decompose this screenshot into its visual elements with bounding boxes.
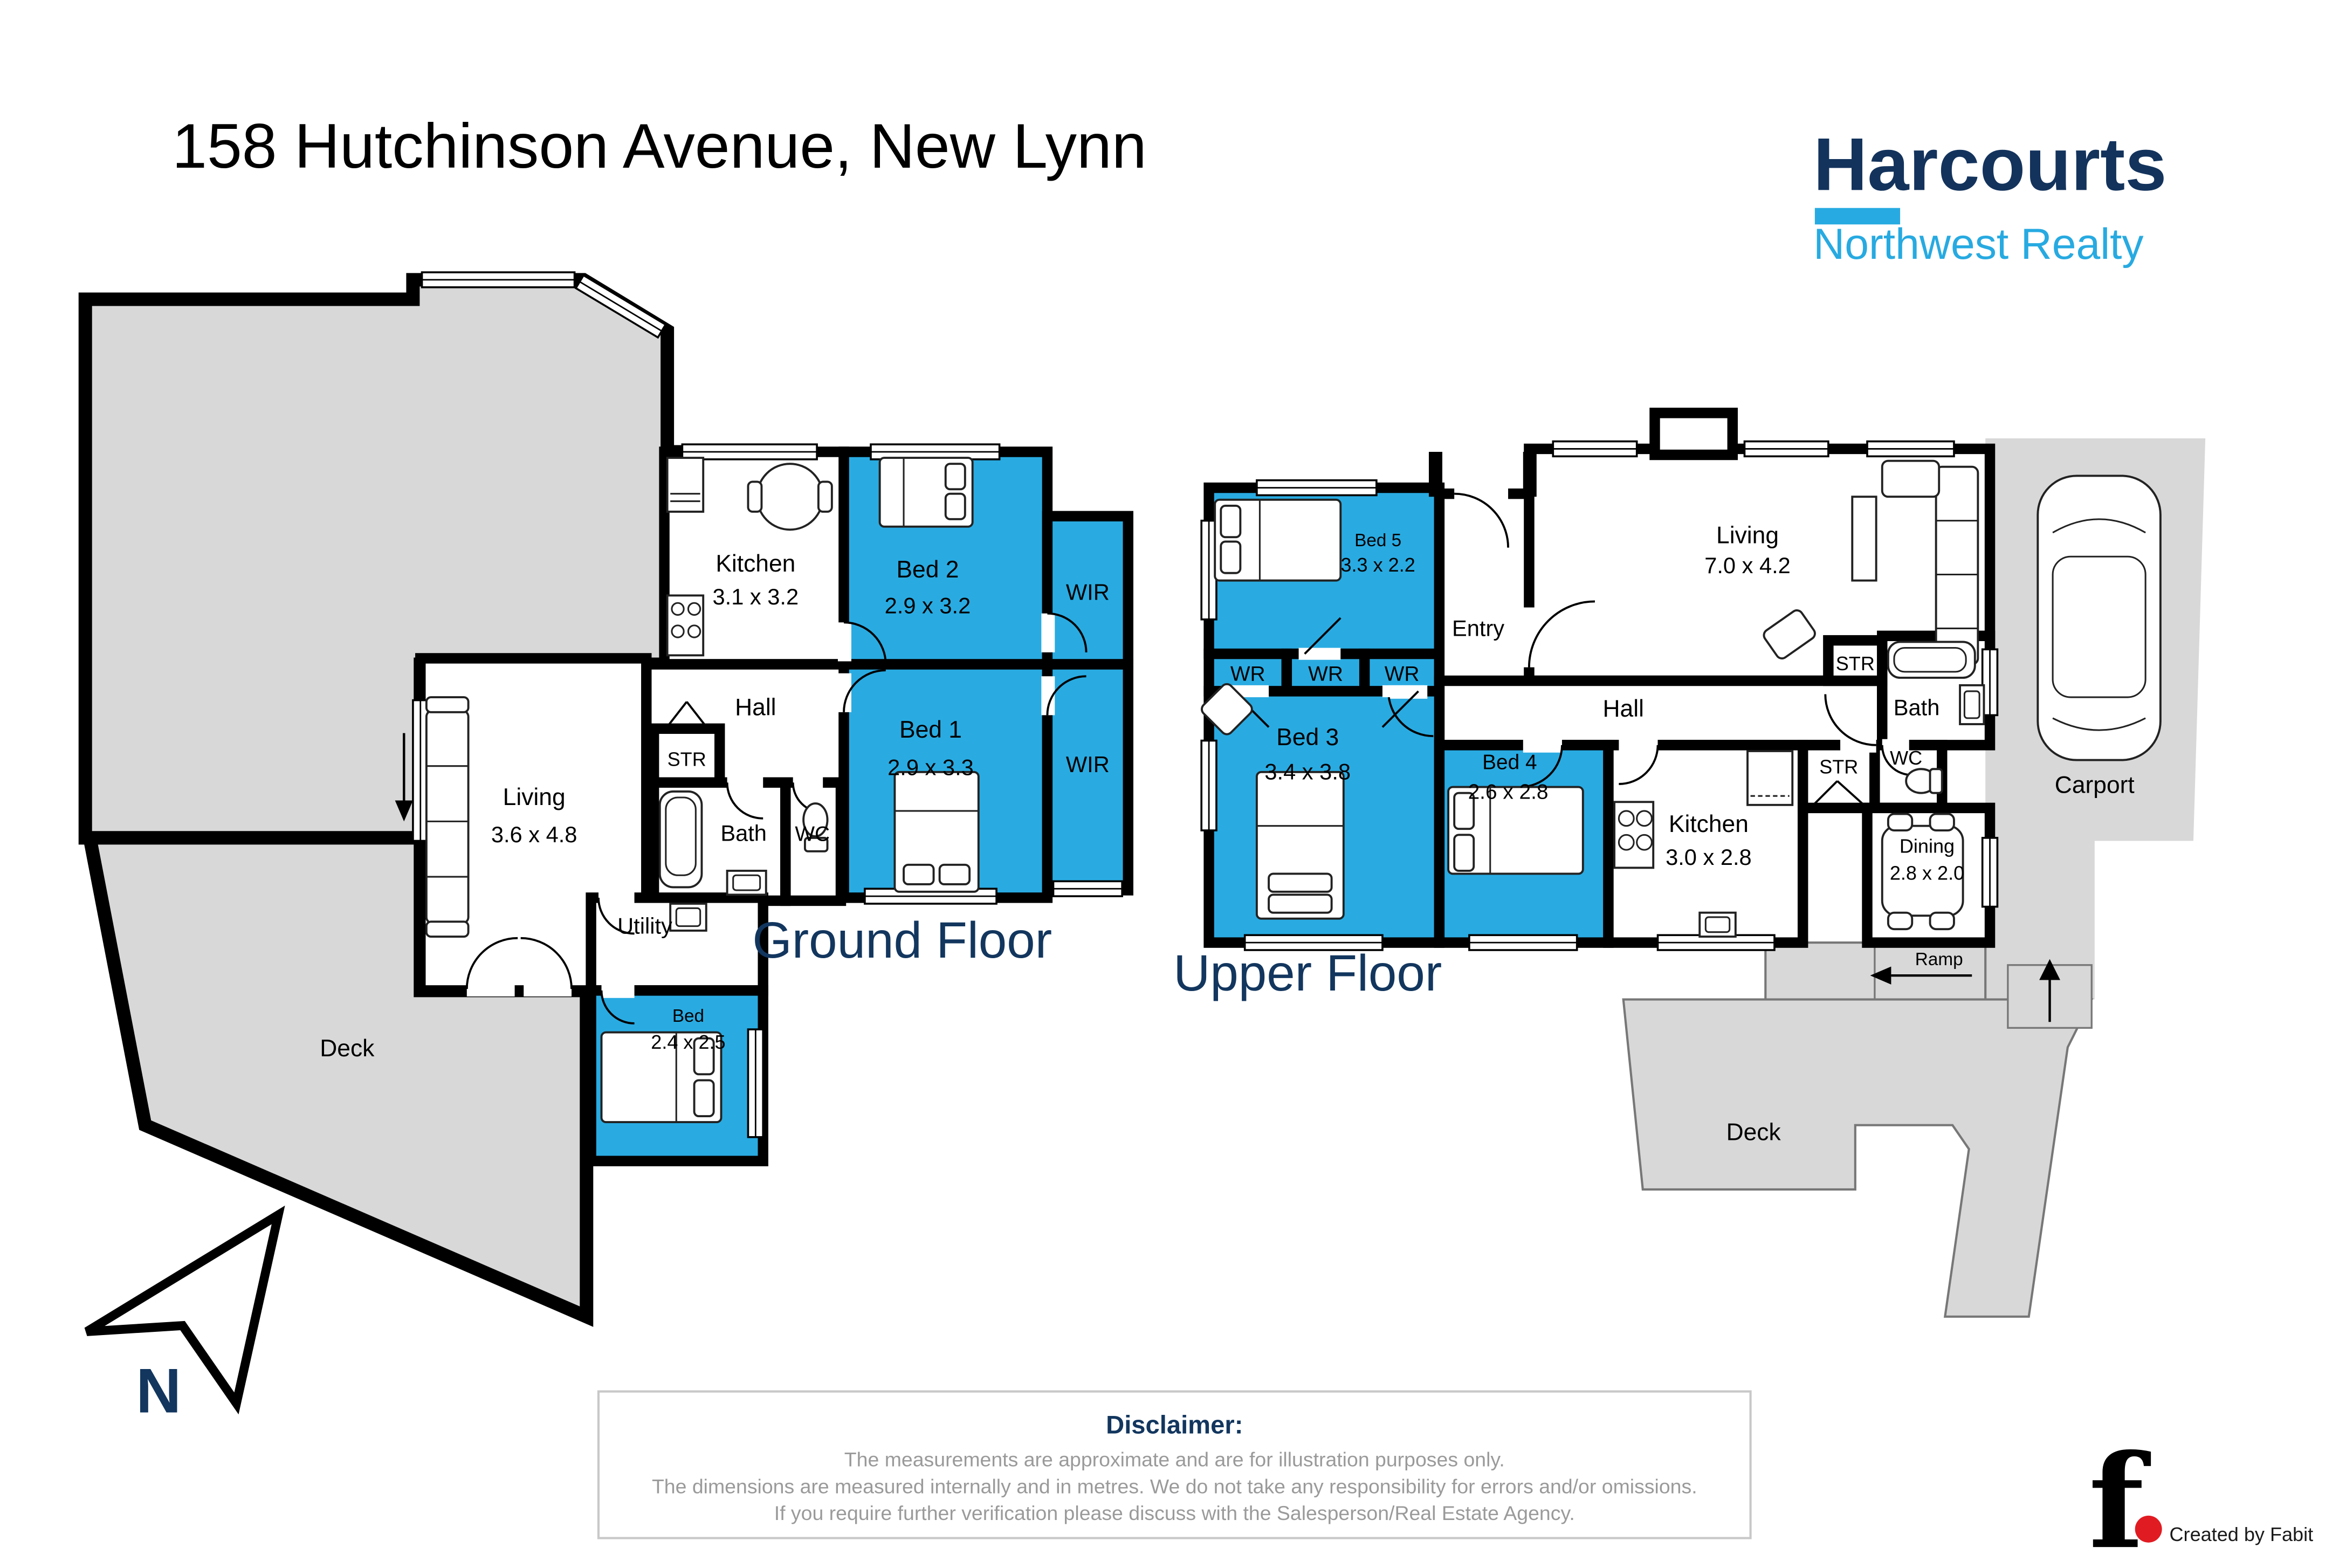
room-label-upper-living: Living xyxy=(1716,522,1779,548)
disclaimer-line-3: If you require further verification plea… xyxy=(774,1502,1575,1524)
bathtub-icon xyxy=(660,792,702,888)
upper-floor-plan: Bed 5 3.3 x 2.2 WR WR WR Entry Living 7.… xyxy=(1173,413,2205,1317)
porch-wall xyxy=(1523,452,1537,497)
sink-icon xyxy=(727,871,766,895)
sink-icon xyxy=(1700,913,1736,937)
room-label-ground-wc: WC xyxy=(795,822,830,845)
fridge-icon xyxy=(1748,751,1792,805)
room-label-upper-str-bottom: STR xyxy=(1819,756,1858,778)
sofa-icon xyxy=(426,697,469,937)
room-label-upper-deck: Deck xyxy=(1726,1119,1781,1145)
stove-icon xyxy=(668,595,704,655)
car-icon xyxy=(2038,476,2161,760)
disclaimer-line-2: The dimensions are measured internally a… xyxy=(652,1475,1697,1497)
room-label-ground-str: STR xyxy=(668,748,706,771)
room-label-ground-utility: Utility xyxy=(617,913,672,938)
room-label-upper-hall: Hall xyxy=(1602,696,1643,722)
room-dims-upper-bed4: 2.6 x 2.8 xyxy=(1468,781,1549,804)
coffee-table-icon xyxy=(1852,497,1876,580)
room-dims-ground-bed-small: 2.4 x 2.5 xyxy=(651,1031,725,1053)
room-label-upper-entry: Entry xyxy=(1452,615,1504,641)
sink-icon xyxy=(1960,685,1984,724)
room-label-upper-wr3: WR xyxy=(1385,663,1420,686)
room-label-ground-bed2: Bed 2 xyxy=(896,556,959,583)
ground-floor-title: Ground Floor xyxy=(752,912,1052,968)
room-dims-ground-kitchen: 3.1 x 3.2 xyxy=(713,584,799,609)
room-upper-hall xyxy=(1439,681,1882,745)
bed-icon xyxy=(880,458,973,527)
porch-wall xyxy=(1429,452,1442,497)
north-label: N xyxy=(136,1355,181,1426)
harcourts-logo: Harcourts Northwest Realty xyxy=(1813,122,2166,269)
upper-floor-title: Upper Floor xyxy=(1173,945,1442,1001)
room-label-ground-wir-bottom: WIR xyxy=(1066,752,1110,777)
entry-arrow-icon xyxy=(2008,959,2092,1028)
room-label-upper-wr2: WR xyxy=(1308,663,1343,686)
stove-icon xyxy=(1614,802,1653,868)
ground-floor-plan: Kitchen 3.1 x 3.2 Bed 2 2.9 x 3.2 WIR Ha… xyxy=(85,272,1128,1317)
fabit-credit: f Created by Fabit xyxy=(2089,1427,2313,1568)
room-dims-ground-bed1: 2.9 x 3.3 xyxy=(888,754,974,780)
room-label-upper-bed4: Bed 4 xyxy=(1482,751,1537,774)
bathtub-icon xyxy=(1888,642,1975,678)
fridge-icon xyxy=(668,458,704,512)
room-label-upper-str-top: STR xyxy=(1836,652,1875,675)
room-dims-ground-bed2: 2.9 x 3.2 xyxy=(885,593,971,618)
logo-sub-text: Northwest Realty xyxy=(1813,220,2144,269)
disclaimer-title: Disclaimer: xyxy=(1106,1410,1243,1439)
bed-icon xyxy=(1257,772,1344,919)
header: 158 Hutchinson Avenue, New Lynn Harcourt… xyxy=(172,111,2166,269)
room-label-ground-hall: Hall xyxy=(735,694,776,720)
room-label-upper-wr1: WR xyxy=(1230,663,1265,686)
room-label-ground-deck: Deck xyxy=(320,1035,375,1062)
room-upper-entry xyxy=(1439,494,1529,691)
upper-living-bump xyxy=(1655,413,1732,455)
room-dims-upper-kitchen: 3.0 x 2.8 xyxy=(1666,844,1752,870)
north-arrow-icon xyxy=(87,1215,278,1404)
toilet-icon xyxy=(1906,769,1942,793)
room-label-ground-bed1: Bed 1 xyxy=(899,717,962,743)
room-label-ground-living: Living xyxy=(503,784,566,810)
room-label-ground-bed-small: Bed xyxy=(672,1006,704,1026)
room-dims-upper-dining: 2.8 x 2.0 xyxy=(1890,862,1964,884)
north-compass: N xyxy=(87,1215,278,1426)
fabit-logo-icon: f xyxy=(2089,1427,2151,1568)
disclaimer-box: Disclaimer: The measurements are approxi… xyxy=(598,1392,1751,1538)
credit-text: Created by Fabit xyxy=(2170,1523,2314,1545)
floorplan-canvas: 158 Hutchinson Avenue, New Lynn Harcourt… xyxy=(0,0,2346,1568)
room-dims-ground-living: 3.6 x 4.8 xyxy=(491,822,577,847)
room-label-upper-ramp: Ramp xyxy=(1915,950,1963,969)
room-label-upper-kitchen: Kitchen xyxy=(1669,811,1749,837)
bed-icon xyxy=(895,772,978,892)
fabit-red-dot-icon xyxy=(2135,1516,2162,1543)
room-label-upper-bed5: Bed 5 xyxy=(1354,531,1401,551)
logo-brand-text: Harcourts xyxy=(1813,122,2166,206)
room-label-upper-bath: Bath xyxy=(1894,694,1940,720)
room-dims-upper-bed3: 3.4 x 3.8 xyxy=(1264,759,1351,785)
room-dims-upper-living: 7.0 x 4.2 xyxy=(1704,553,1791,578)
bed-icon xyxy=(1215,500,1340,581)
room-label-upper-bed3: Bed 3 xyxy=(1276,724,1339,751)
room-label-upper-dining: Dining xyxy=(1900,835,1955,857)
upper-deck-area xyxy=(1623,1000,2092,1317)
room-label-upper-carport: Carport xyxy=(2055,772,2135,799)
page-title: 158 Hutchinson Avenue, New Lynn xyxy=(172,111,1147,181)
room-label-ground-kitchen: Kitchen xyxy=(716,551,795,577)
room-dims-upper-bed5: 3.3 x 2.2 xyxy=(1340,554,1415,576)
room-label-ground-bath: Bath xyxy=(720,820,767,845)
room-ground-wir-bottom xyxy=(1047,664,1128,890)
laundry-tub-icon xyxy=(670,904,706,931)
room-label-upper-wc: WC xyxy=(1890,747,1922,769)
disclaimer-line-1: The measurements are approximate and are… xyxy=(844,1448,1505,1470)
room-label-ground-wir-top: WIR xyxy=(1066,580,1110,605)
